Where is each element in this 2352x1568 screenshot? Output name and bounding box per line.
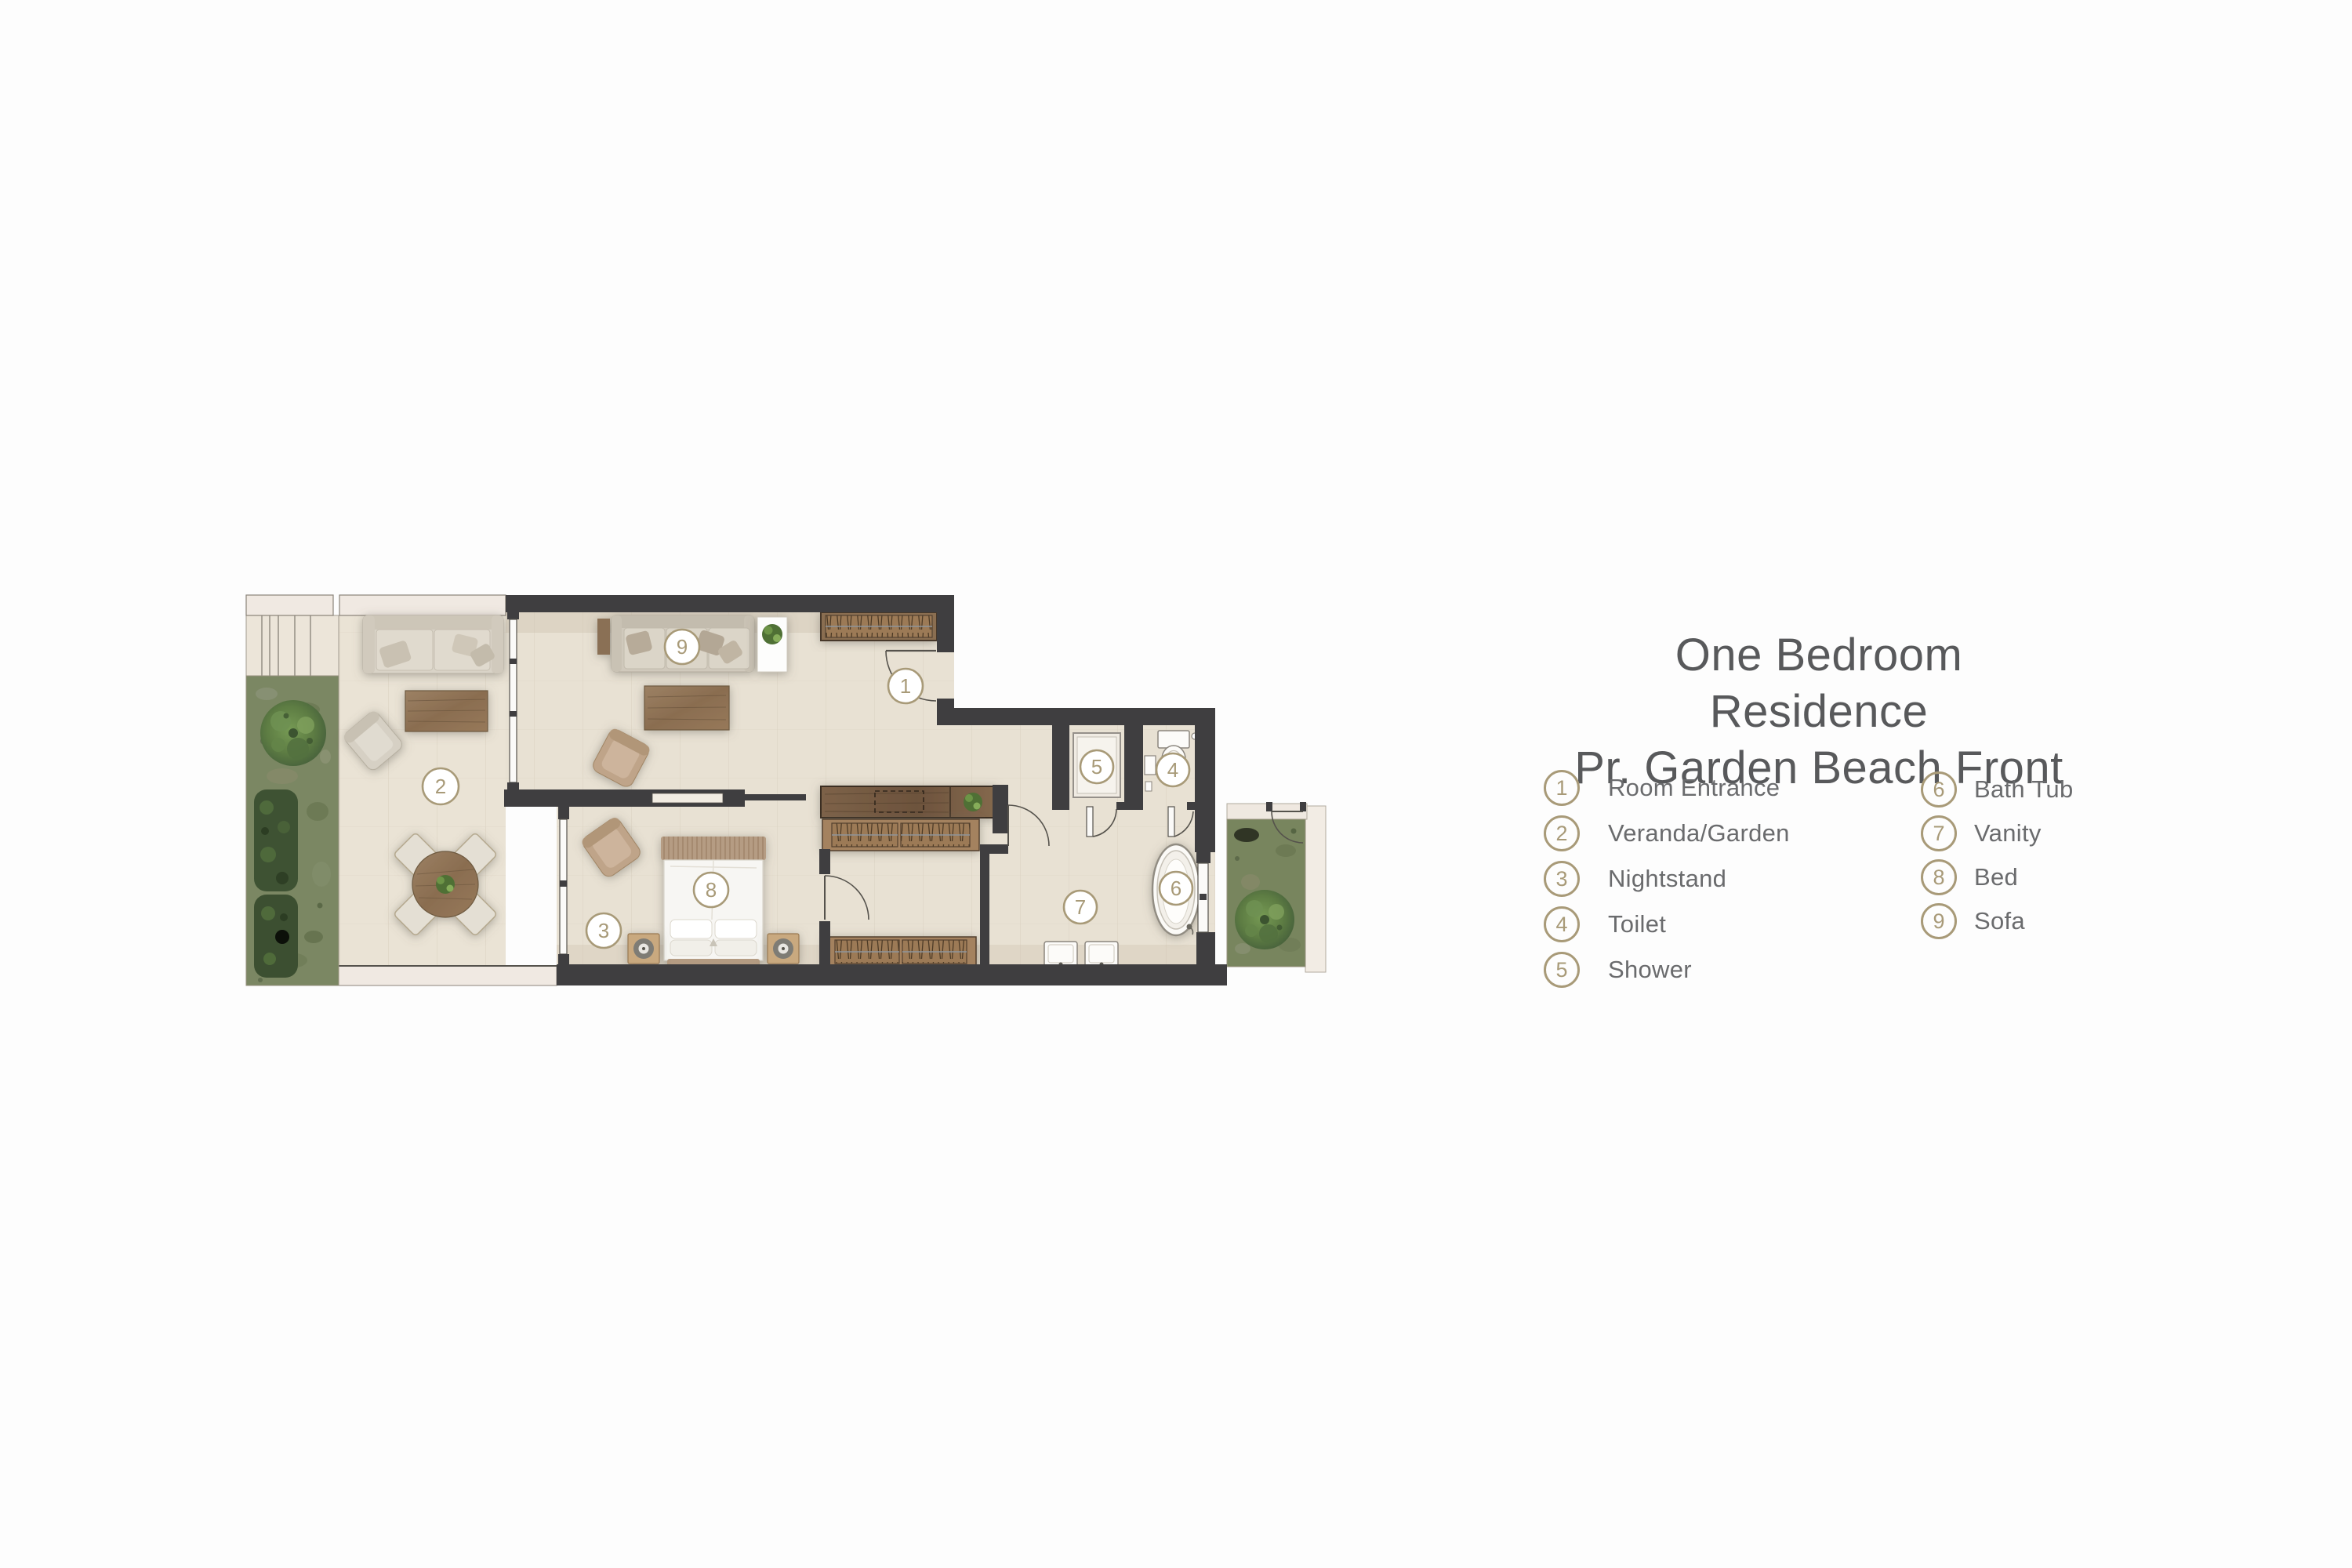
legend-item-label: Veranda/Garden — [1608, 819, 1790, 848]
legend-number-badge: 9 — [1921, 903, 1957, 939]
veranda-coffee-table — [405, 691, 488, 731]
legend-item-toilet: 4 Toilet — [1544, 907, 1790, 942]
living-side-table — [757, 617, 787, 672]
marker-9: 9 — [665, 630, 699, 664]
legend-item-nightstand: 3 Nightstand — [1544, 862, 1790, 896]
legend-item-label: Nightstand — [1608, 865, 1726, 893]
svg-text:5: 5 — [1091, 755, 1102, 779]
legend-item-label: Bed — [1974, 863, 2018, 891]
veranda-parapet-bottom — [339, 966, 557, 985]
marker-2: 2 — [423, 768, 459, 804]
svg-text:3: 3 — [598, 919, 609, 942]
svg-text:4: 4 — [1167, 758, 1178, 782]
marker-5: 5 — [1080, 750, 1113, 783]
legend-number-badge: 8 — [1921, 859, 1957, 895]
legend-item-vanity: 7 Vanity — [1921, 816, 2074, 851]
wardrobe-top — [822, 819, 979, 851]
svg-text:7: 7 — [1075, 895, 1086, 919]
legend-column-1: 1 Room Entrance 2 Veranda/Garden 3 Night… — [1544, 771, 1790, 987]
marker-1: 1 — [888, 669, 923, 703]
legend-item-label: Bath Tub — [1974, 775, 2074, 804]
tv-console — [821, 786, 995, 818]
wardrobe-bottom — [824, 937, 976, 967]
marker-3: 3 — [586, 913, 621, 948]
legend-item-label: Shower — [1608, 956, 1692, 984]
left-garden-tree — [260, 700, 326, 766]
marker-6: 6 — [1160, 872, 1192, 905]
legend-item-label: Vanity — [1974, 819, 2042, 848]
page-root: 1 2 3 4 5 6 7 8 9 One Bedroom Residence … — [0, 0, 2352, 1568]
svg-text:9: 9 — [677, 635, 688, 659]
legend-item-bath-tub: 6 Bath Tub — [1921, 772, 2074, 807]
legend-number-badge: 3 — [1544, 861, 1580, 897]
legend-number-badge: 6 — [1921, 771, 1957, 808]
veranda-sofa — [363, 615, 503, 673]
legend-number-badge: 7 — [1921, 815, 1957, 851]
svg-text:8: 8 — [706, 878, 717, 902]
svg-text:1: 1 — [900, 674, 911, 698]
legend-item-shower: 5 Shower — [1544, 953, 1790, 987]
legend-column-2: 6 Bath Tub 7 Vanity 8 Bed 9 Sofa — [1921, 772, 2074, 938]
legend-item-sofa: 9 Sofa — [1921, 904, 2074, 938]
entry-console — [821, 612, 937, 641]
veranda-steps — [246, 615, 339, 676]
svg-text:2: 2 — [435, 775, 446, 798]
legend-item-label: Toilet — [1608, 910, 1666, 938]
legend-item-veranda-garden: 2 Veranda/Garden — [1544, 816, 1790, 851]
right-garden — [1227, 802, 1326, 972]
living-coffee-table — [644, 686, 729, 730]
legend-item-bed: 8 Bed — [1921, 860, 2074, 895]
veranda-parapet-top — [246, 595, 506, 615]
legend-number-badge: 2 — [1544, 815, 1580, 851]
legend-item-room-entrance: 1 Room Entrance — [1544, 771, 1790, 805]
nightstand-left — [628, 934, 659, 964]
left-garden-hedge — [254, 789, 298, 978]
nightstand-right — [768, 934, 799, 964]
right-garden-tree — [1235, 890, 1294, 949]
left-garden — [246, 676, 339, 985]
marker-7: 7 — [1064, 891, 1097, 924]
legend-item-label: Room Entrance — [1608, 774, 1780, 802]
bathroom-window — [1198, 863, 1208, 932]
svg-text:6: 6 — [1171, 877, 1181, 900]
floor-plan: 1 2 3 4 5 6 7 8 9 — [243, 584, 1360, 1007]
marker-8: 8 — [694, 873, 728, 907]
marker-4: 4 — [1156, 753, 1189, 786]
legend-item-label: Sofa — [1974, 907, 2025, 935]
title-line-1: One Bedroom Residence — [1564, 627, 2074, 740]
legend-number-badge: 5 — [1544, 952, 1580, 988]
legend-number-badge: 1 — [1544, 770, 1580, 806]
legend-number-badge: 4 — [1544, 906, 1580, 942]
